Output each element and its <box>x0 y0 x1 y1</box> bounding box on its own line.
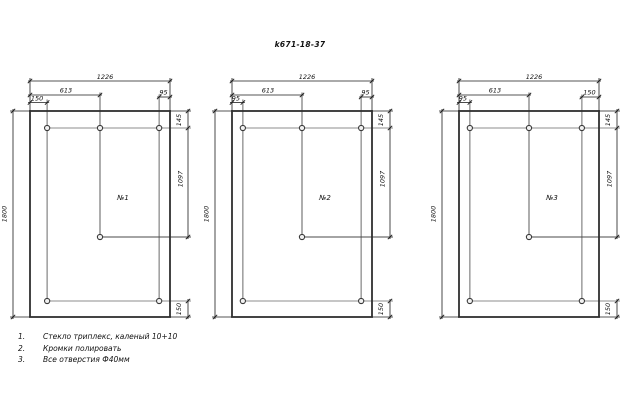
dim-label-middle-offset: 1097 <box>177 170 185 187</box>
dim-label-left-hole: 95 <box>232 95 240 103</box>
note-number: 1. <box>18 331 25 343</box>
dim-label-overall-width: 1226 <box>97 73 114 81</box>
hole-marker <box>467 125 472 130</box>
dim-label-left-hole: 95 <box>459 95 467 103</box>
dim-label-right-hole: 95 <box>361 89 369 97</box>
note-text: Все отверстия Ф40мм <box>43 354 130 366</box>
hole-marker <box>97 234 102 239</box>
hole-marker <box>45 125 50 130</box>
dim-label-overall-height: 1800 <box>430 206 438 223</box>
dim-label-top-offset: 145 <box>175 114 183 126</box>
dim-label-middle-offset: 1097 <box>379 170 387 187</box>
dim-label-middle-offset: 1097 <box>606 170 614 187</box>
panel-label: №1 <box>116 194 129 202</box>
hole-marker <box>240 298 245 303</box>
hole-marker <box>157 298 162 303</box>
dim-label-bottom-offset: 150 <box>175 303 183 315</box>
hole-marker <box>240 125 245 130</box>
dim-label-bottom-offset: 150 <box>377 303 385 315</box>
dim-label-overall-height: 1800 <box>1 206 9 223</box>
dim-label-center-hole: 613 <box>262 87 274 95</box>
hole-marker <box>526 125 531 130</box>
panel-drawing-3: 12266139515018001451097150№3 <box>430 73 621 319</box>
panel-drawing-1: 12266131509518001451097150№1 <box>1 73 192 319</box>
note-3: 3. Все отверстия Ф40мм <box>0 354 400 366</box>
note-2: 2. Кромки полировать <box>0 343 400 355</box>
dim-label-right-hole: 150 <box>583 89 595 97</box>
drawing-sheet: k671-18-37 12266131509518001451097150№11… <box>0 0 641 410</box>
notes-list: 1. Стекло триплекс, каленый 10+10 2. Кро… <box>0 331 400 366</box>
dim-label-center-hole: 613 <box>489 87 501 95</box>
dim-label-top-offset: 145 <box>604 114 612 126</box>
dim-label-center-hole: 613 <box>60 87 72 95</box>
panel-drawing-2: 1226613959518001451097150№2 <box>203 73 394 319</box>
hole-marker <box>467 298 472 303</box>
dim-label-overall-width: 1226 <box>299 73 316 81</box>
hole-marker <box>157 125 162 130</box>
hole-marker <box>579 298 584 303</box>
hole-marker <box>45 298 50 303</box>
note-text: Стекло триплекс, каленый 10+10 <box>43 331 177 343</box>
hole-marker <box>526 234 531 239</box>
note-number: 3. <box>18 354 25 366</box>
hole-marker <box>359 125 364 130</box>
note-text: Кромки полировать <box>43 343 121 355</box>
hole-marker <box>299 234 304 239</box>
hole-marker <box>299 125 304 130</box>
panel-label: №2 <box>318 194 331 202</box>
dim-label-top-offset: 145 <box>377 114 385 126</box>
dim-label-left-hole: 150 <box>31 95 43 103</box>
dim-label-bottom-offset: 150 <box>604 303 612 315</box>
dim-label-overall-height: 1800 <box>203 206 211 223</box>
note-1: 1. Стекло триплекс, каленый 10+10 <box>0 331 400 343</box>
dim-label-right-hole: 95 <box>159 89 167 97</box>
note-number: 2. <box>18 343 25 355</box>
hole-marker <box>579 125 584 130</box>
panel-label: №3 <box>545 194 558 202</box>
dim-label-overall-width: 1226 <box>526 73 543 81</box>
hole-marker <box>97 125 102 130</box>
hole-marker <box>359 298 364 303</box>
